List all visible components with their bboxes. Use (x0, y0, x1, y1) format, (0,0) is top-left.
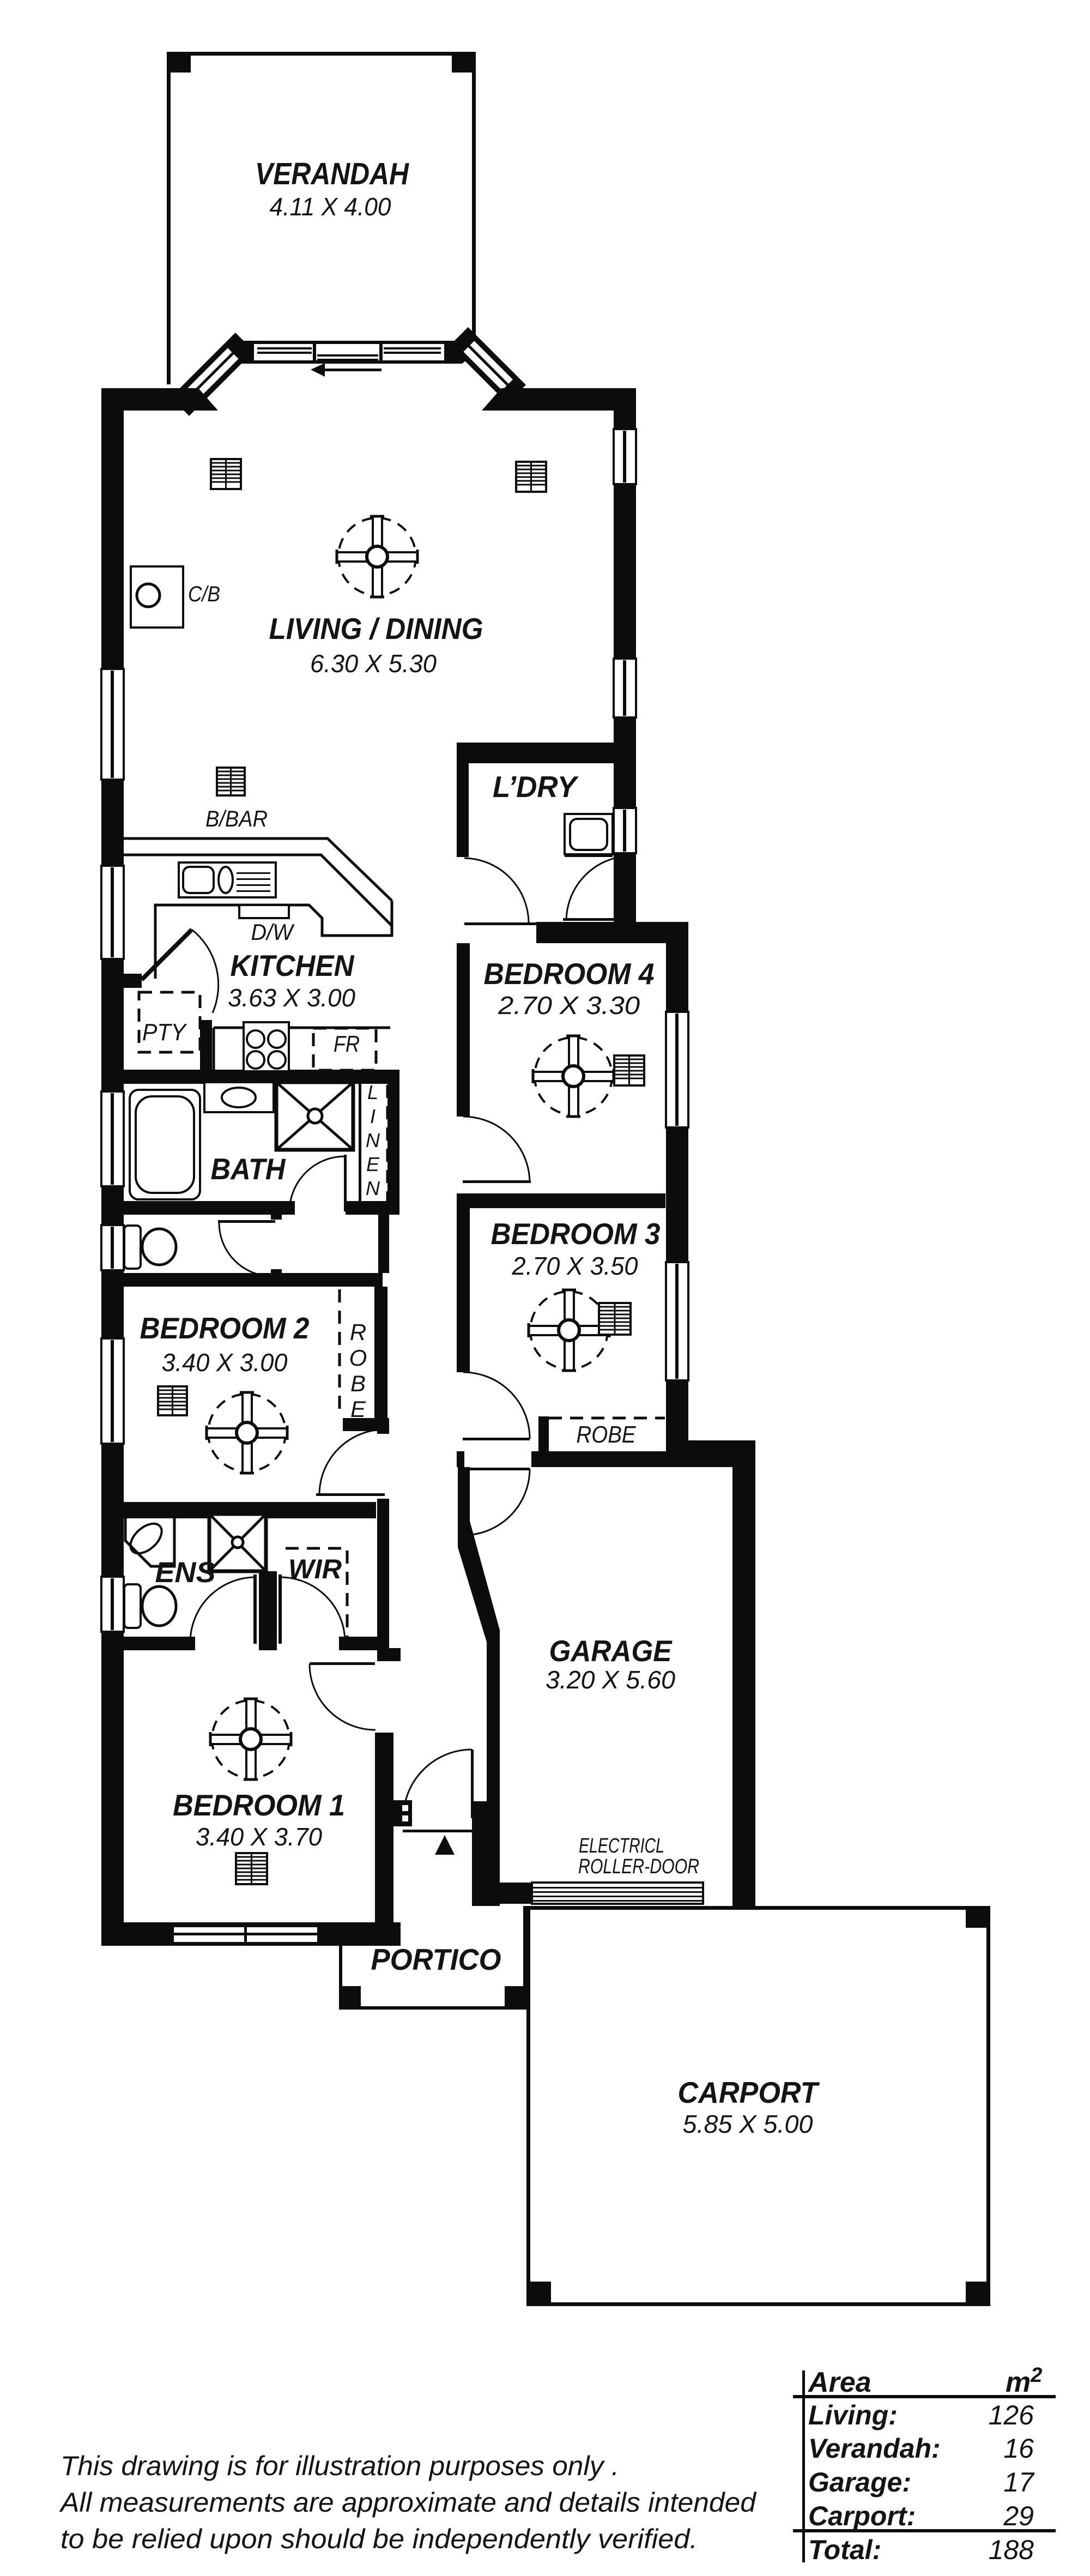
svg-text:ENS: ENS (155, 1557, 216, 1589)
svg-text:B: B (350, 1371, 366, 1396)
svg-text:BEDROOM 1: BEDROOM 1 (173, 1788, 345, 1822)
svg-text:O: O (349, 1345, 367, 1371)
svg-text:C/B: C/B (188, 582, 220, 606)
svg-text:16: 16 (1003, 2433, 1034, 2464)
svg-text:5.85 X 5.00: 5.85 X 5.00 (683, 2110, 813, 2138)
svg-text:BEDROOM 4: BEDROOM 4 (484, 957, 655, 991)
svg-text:PORTICO: PORTICO (371, 1942, 501, 1976)
svg-text:2.70 X 3.30: 2.70 X 3.30 (498, 991, 640, 1019)
svg-text:Carport:: Carport: (808, 2501, 916, 2531)
svg-text:B/BAR: B/BAR (205, 806, 268, 831)
svg-text:BEDROOM 2: BEDROOM 2 (140, 1311, 310, 1345)
svg-text:All measurements are approxima: All measurements are approximate and det… (59, 2487, 757, 2518)
svg-text:D/W: D/W (251, 919, 295, 945)
svg-text:Garage:: Garage: (808, 2467, 911, 2497)
svg-text:WIR: WIR (288, 1554, 342, 1584)
svg-text:17: 17 (1003, 2467, 1035, 2497)
svg-text:L’DRY: L’DRY (493, 770, 579, 804)
svg-text:FR: FR (334, 1031, 360, 1057)
svg-text:KITCHEN: KITCHEN (231, 949, 355, 982)
svg-text:3.40 X 3.70: 3.40 X 3.70 (196, 1823, 322, 1851)
svg-text:188: 188 (989, 2535, 1034, 2565)
svg-text:29: 29 (1003, 2501, 1034, 2531)
svg-text:BEDROOM 3: BEDROOM 3 (491, 1217, 661, 1251)
svg-text:to be relied upon should be in: to be relied upon should be independentl… (60, 2524, 698, 2554)
svg-text:3.40 X 3.00: 3.40 X 3.00 (162, 1348, 288, 1377)
svg-text:BATH: BATH (211, 1152, 286, 1186)
svg-text:I: I (370, 1105, 376, 1127)
svg-text:N: N (366, 1129, 380, 1151)
svg-text:ELECTRICL: ELECTRICL (579, 1835, 664, 1857)
svg-text:PTY: PTY (142, 1019, 187, 1046)
svg-text:Living:: Living: (808, 2400, 898, 2430)
svg-text:126: 126 (989, 2400, 1034, 2430)
svg-text:This drawing is for illustrati: This drawing is for illustration purpose… (60, 2451, 619, 2481)
svg-text:4.11 X 4.00: 4.11 X 4.00 (270, 192, 391, 221)
svg-text:LIVING / DINING: LIVING / DINING (269, 612, 483, 645)
svg-text:Area: Area (807, 2367, 871, 2398)
svg-text:E: E (366, 1153, 380, 1175)
svg-text:Total:: Total: (808, 2535, 881, 2565)
svg-text:CARPORT: CARPORT (678, 2076, 820, 2109)
svg-text:E: E (350, 1396, 366, 1422)
svg-text:6.30 X 5.30: 6.30 X 5.30 (310, 649, 437, 678)
svg-text:Verandah:: Verandah: (808, 2433, 941, 2464)
svg-text:ROLLER-DOOR: ROLLER-DOOR (578, 1855, 699, 1878)
svg-text:ROBE: ROBE (577, 1421, 637, 1448)
svg-text:N: N (366, 1177, 380, 1199)
svg-text:R: R (350, 1319, 366, 1345)
svg-text:3.63 X 3.00: 3.63 X 3.00 (228, 984, 355, 1012)
svg-text:L: L (367, 1081, 378, 1103)
svg-text:3.20 X 5.60: 3.20 X 5.60 (546, 1666, 675, 1694)
svg-text:VERANDAH: VERANDAH (255, 156, 410, 191)
svg-text:GARAGE: GARAGE (549, 1634, 673, 1668)
svg-text:2.70 X 3.50: 2.70 X 3.50 (512, 1252, 638, 1280)
